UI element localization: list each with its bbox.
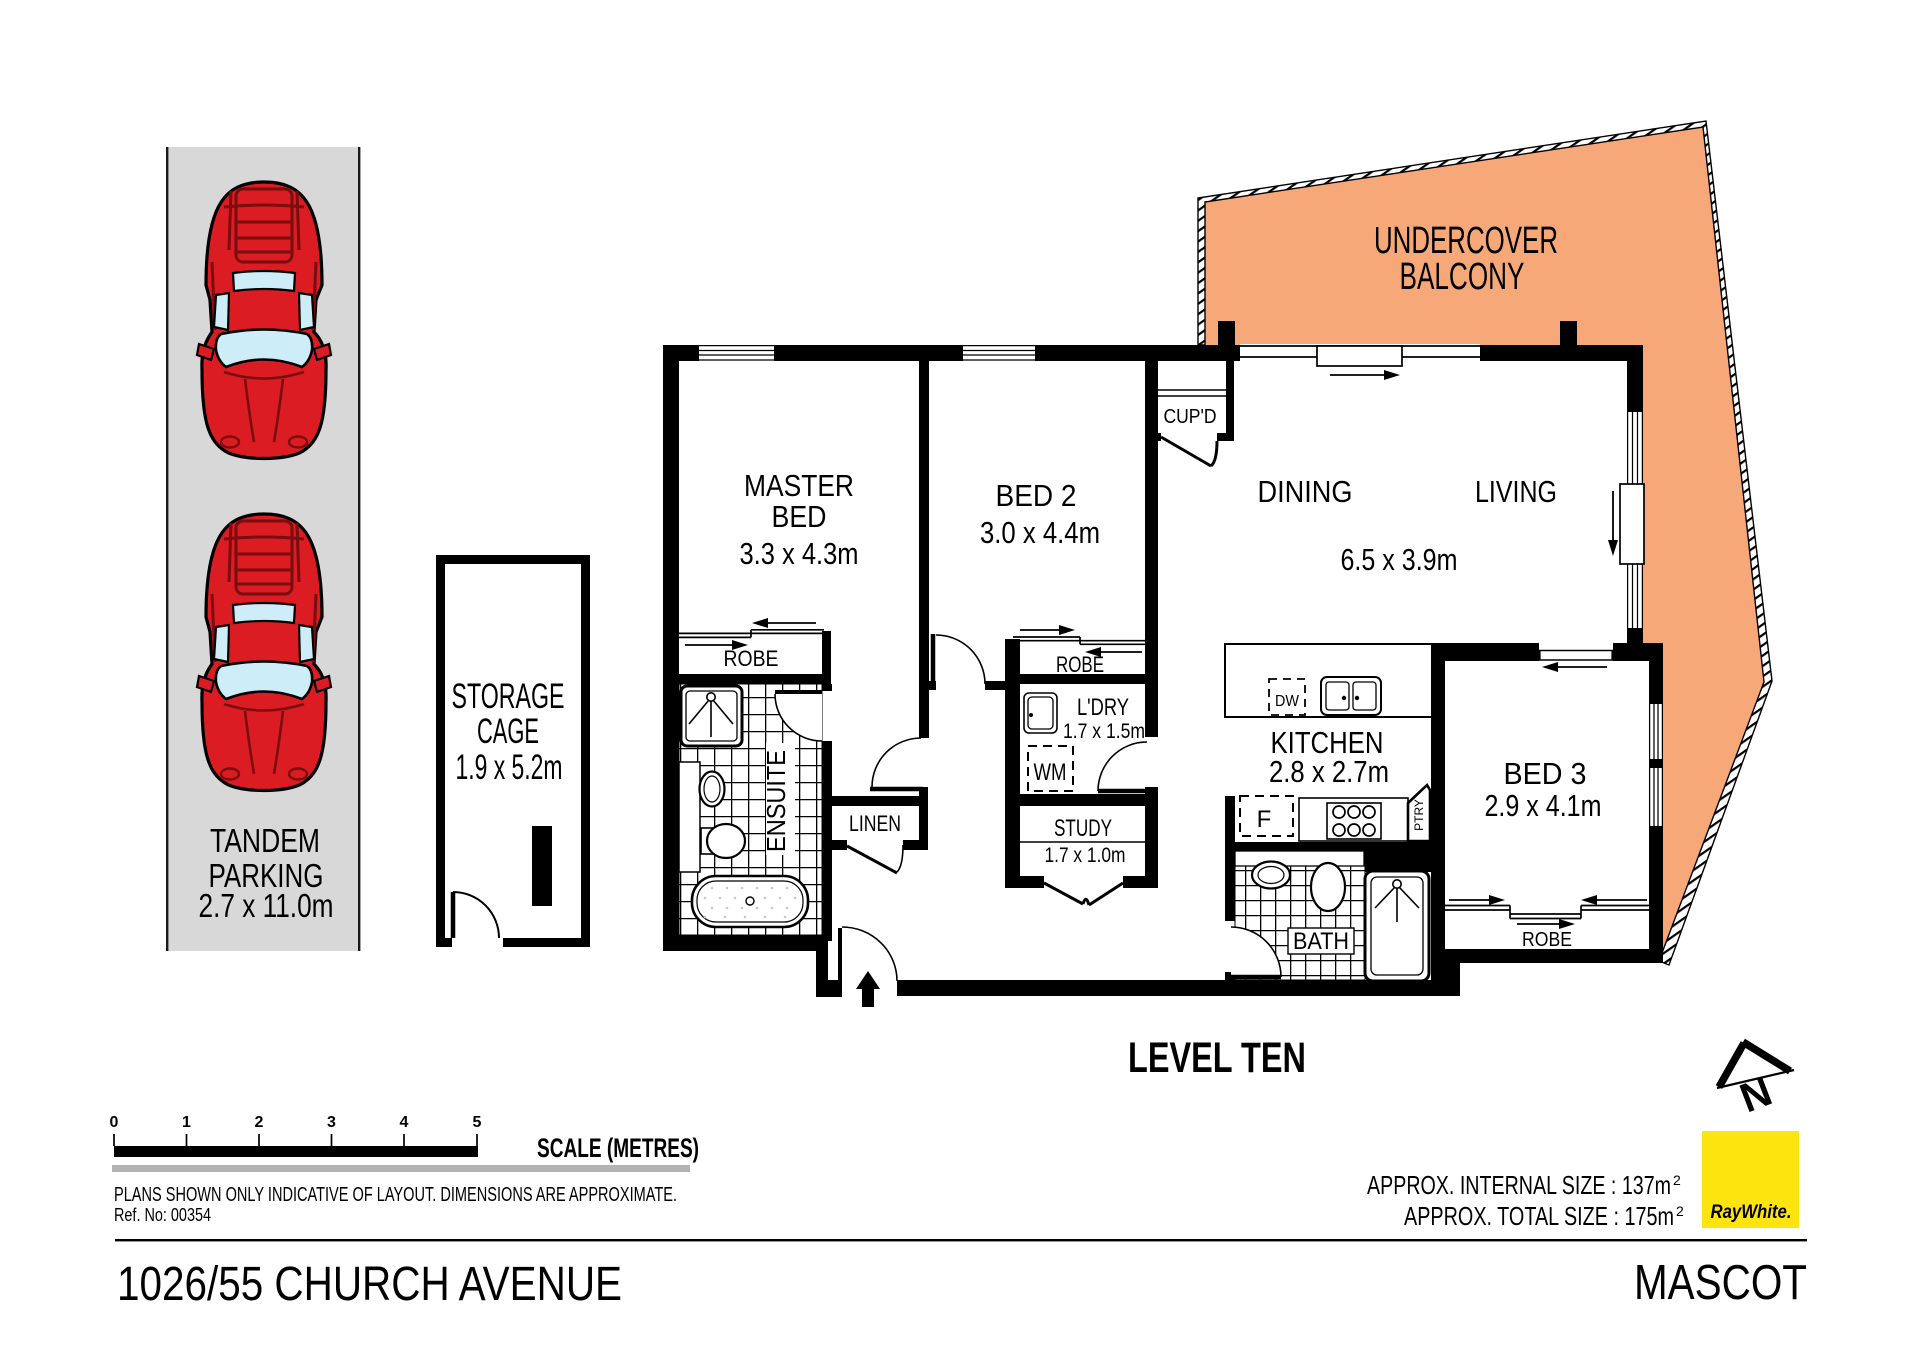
svg-text:1: 1 [182, 1114, 191, 1131]
svg-text:BALCONY: BALCONY [1400, 256, 1525, 298]
svg-text:1.7 x 1.0m: 1.7 x 1.0m [1045, 844, 1126, 867]
svg-text:MASCOT: MASCOT [1634, 1256, 1807, 1310]
svg-text:BED 2: BED 2 [996, 478, 1077, 513]
svg-text:MASTER: MASTER [744, 468, 854, 503]
svg-text:2: 2 [1676, 1203, 1684, 1219]
svg-text:LEVEL TEN: LEVEL TEN [1128, 1034, 1306, 1082]
svg-text:4: 4 [400, 1114, 409, 1131]
svg-text:APPROX. INTERNAL SIZE : 137m: APPROX. INTERNAL SIZE : 137m [1367, 1170, 1671, 1200]
svg-text:BATH: BATH [1293, 928, 1349, 955]
svg-text:2: 2 [1673, 1172, 1681, 1188]
svg-text:0: 0 [110, 1114, 119, 1131]
svg-text:3: 3 [327, 1114, 336, 1131]
svg-text:CAGE: CAGE [477, 712, 539, 751]
svg-text:BED: BED [772, 499, 827, 534]
svg-text:BED 3: BED 3 [1504, 756, 1587, 791]
svg-text:5: 5 [473, 1114, 482, 1131]
svg-text:6.5 x 3.9m: 6.5 x 3.9m [1341, 542, 1458, 577]
svg-text:Ref. No: 00354: Ref. No: 00354 [114, 1205, 211, 1225]
svg-text:STORAGE: STORAGE [452, 677, 565, 716]
svg-text:F: F [1257, 806, 1272, 833]
svg-text:1.9 x 5.2m: 1.9 x 5.2m [456, 748, 563, 787]
svg-text:2: 2 [255, 1114, 264, 1131]
svg-text:LIVING: LIVING [1475, 474, 1557, 509]
svg-text:PLANS SHOWN ONLY INDICATIVE OF: PLANS SHOWN ONLY INDICATIVE OF LAYOUT. D… [114, 1184, 677, 1206]
svg-text:RayWhite.: RayWhite. [1711, 1202, 1792, 1223]
svg-text:WM: WM [1034, 759, 1067, 786]
svg-text:2.9 x 4.1m: 2.9 x 4.1m [1485, 788, 1602, 823]
svg-text:PTRY: PTRY [1412, 799, 1426, 831]
svg-text:1026/55 CHURCH AVENUE: 1026/55 CHURCH AVENUE [117, 1258, 622, 1311]
svg-text:2.7 x 11.0m: 2.7 x 11.0m [199, 887, 334, 924]
svg-text:ENSUITE: ENSUITE [761, 750, 791, 852]
svg-text:ROBE: ROBE [724, 646, 779, 671]
svg-text:1.7 x 1.5m: 1.7 x 1.5m [1063, 720, 1145, 743]
svg-text:TANDEM: TANDEM [210, 822, 320, 859]
svg-text:APPROX. TOTAL SIZE : 175m: APPROX. TOTAL SIZE : 175m [1404, 1201, 1674, 1231]
svg-text:ROBE: ROBE [1522, 929, 1572, 951]
svg-text:DINING: DINING [1258, 474, 1353, 509]
svg-text:ROBE: ROBE [1056, 652, 1104, 677]
svg-text:2.8 x 2.7m: 2.8 x 2.7m [1269, 754, 1389, 789]
svg-text:DW: DW [1275, 693, 1300, 710]
svg-text:CUP'D: CUP'D [1164, 406, 1217, 428]
svg-text:SCALE (METRES): SCALE (METRES) [537, 1133, 699, 1163]
svg-text:L'DRY: L'DRY [1077, 694, 1129, 721]
svg-text:3.3 x 4.3m: 3.3 x 4.3m [740, 536, 859, 571]
svg-text:3.0 x 4.4m: 3.0 x 4.4m [980, 515, 1100, 550]
svg-text:LINEN: LINEN [849, 811, 901, 836]
svg-text:STUDY: STUDY [1054, 815, 1112, 842]
